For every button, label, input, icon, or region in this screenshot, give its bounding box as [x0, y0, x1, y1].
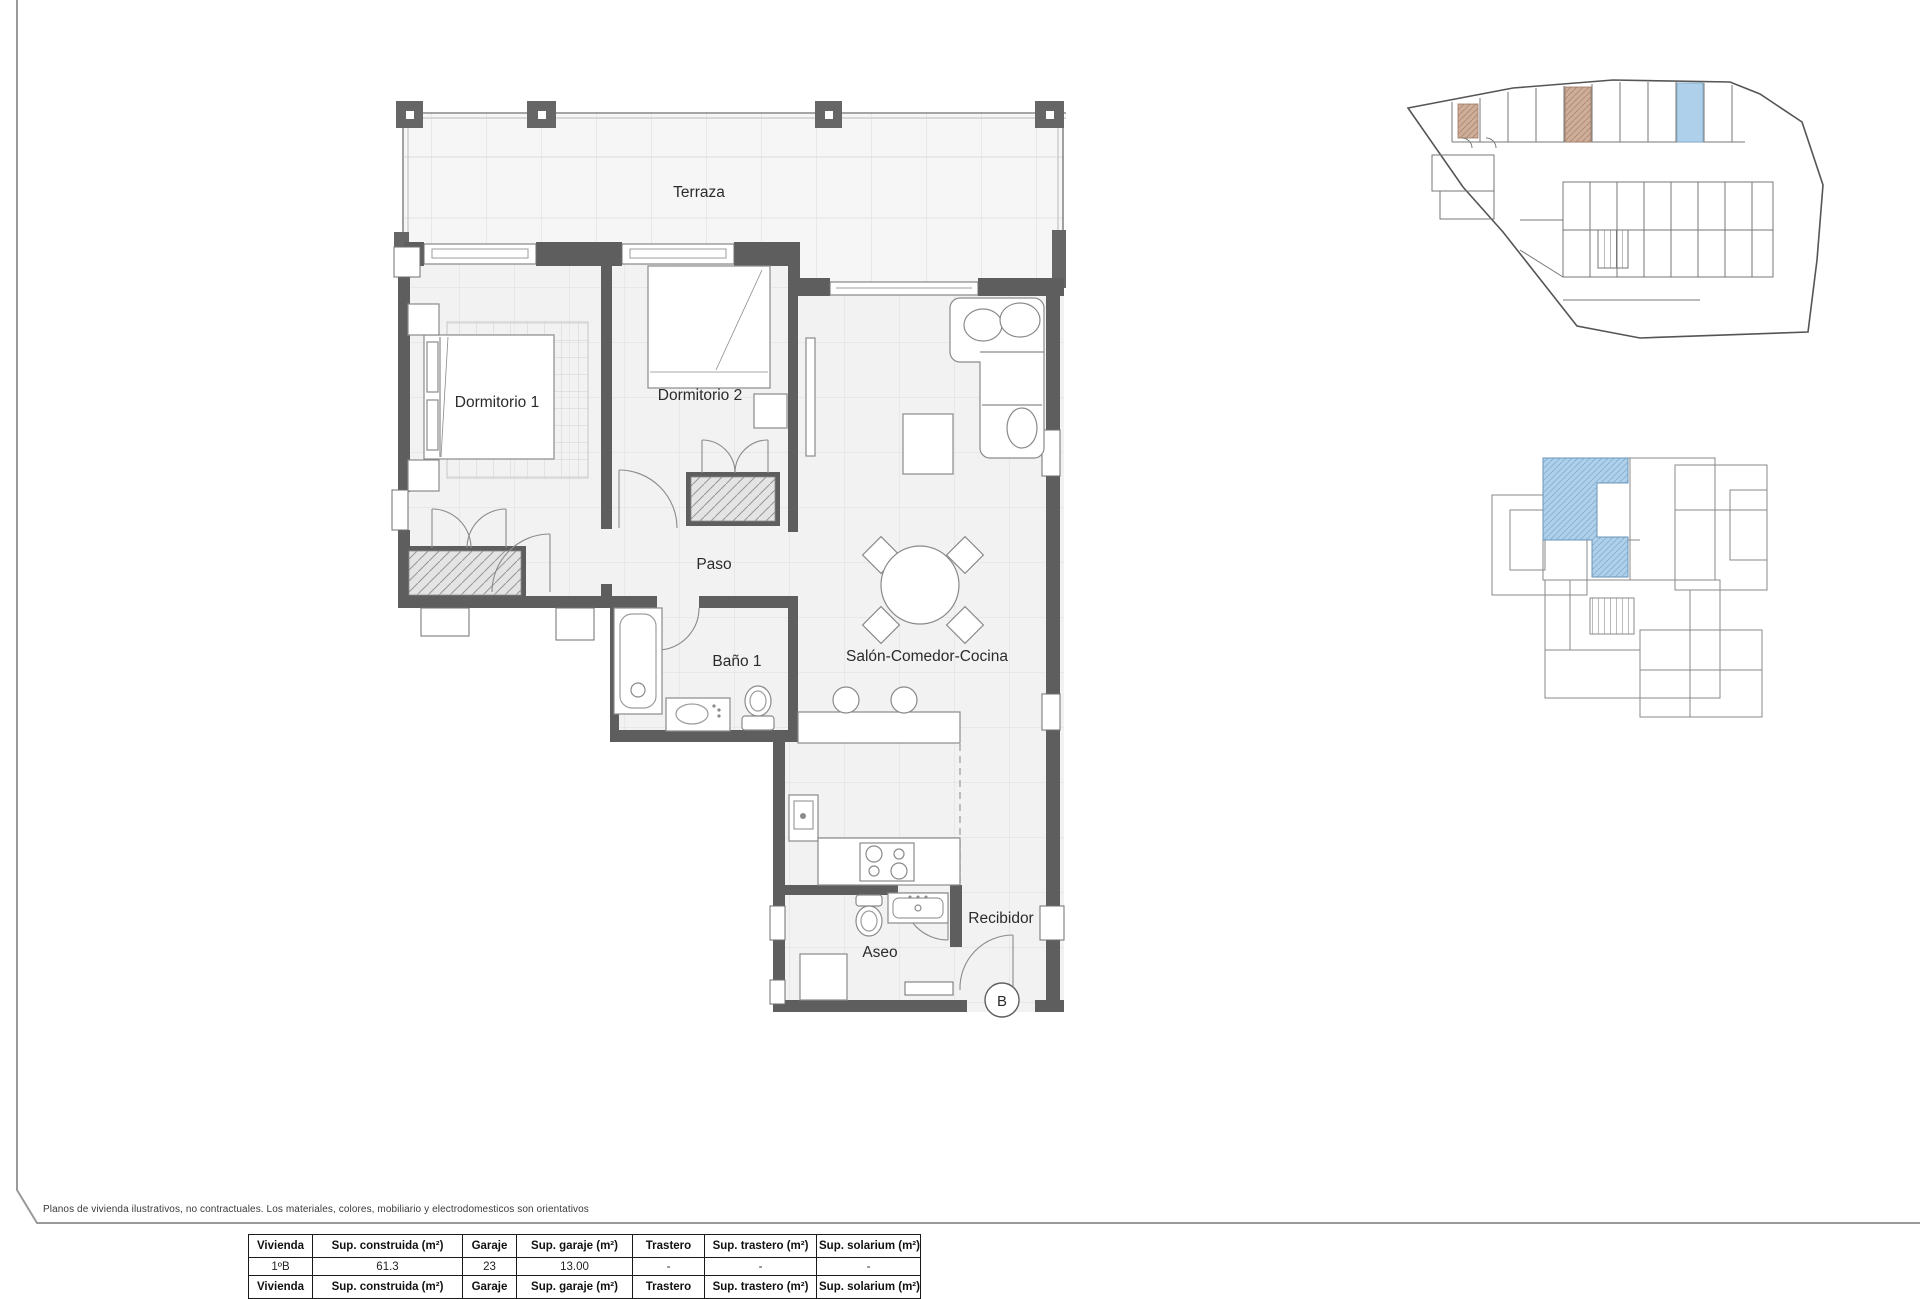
table-header-row: Vivienda Sup. construida (m²) Garaje Sup… — [249, 1235, 921, 1258]
toilet-icon — [856, 895, 882, 936]
room-label-paso: Paso — [696, 556, 731, 573]
col-trastero: Trastero — [633, 1235, 705, 1258]
wardrobe-dorm2 — [691, 477, 775, 521]
shower-icon — [800, 954, 847, 1000]
cell-sup-solarium: - — [817, 1258, 921, 1276]
nightstand-icon — [408, 304, 439, 335]
apartment-plan: Terraza Dormitorio 1 Dormitorio 2 Paso B… — [392, 101, 1066, 1017]
room-label-dormitorio1: Dormitorio 1 — [455, 394, 539, 411]
sink-vanity-icon — [888, 893, 948, 923]
cell-sup-garaje: 13.00 — [517, 1258, 633, 1276]
tv-icon — [806, 338, 815, 456]
col-garaje: Garaje — [463, 1235, 517, 1258]
table-header-row-repeat: Vivienda Sup. construida (m²) Garaje Sup… — [249, 1276, 921, 1299]
garage-space-tan — [1565, 87, 1591, 142]
wardrobe-dorm1 — [409, 551, 521, 595]
room-label-terraza: Terraza — [673, 184, 725, 201]
bed-dorm2-icon — [648, 266, 770, 388]
cell-sup-trastero: - — [705, 1258, 817, 1276]
hob-icon — [860, 843, 914, 881]
sink-vanity-icon — [666, 698, 730, 731]
col-sup-construida: Sup. construida (m²) — [313, 1235, 463, 1258]
col-sup-trastero: Sup. trastero (m²) — [705, 1235, 817, 1258]
room-label-salon: Salón-Comedor-Cocina — [846, 648, 1008, 665]
unit-badge: B — [985, 983, 1019, 1017]
cell-sup-construida: 61.3 — [313, 1258, 463, 1276]
col-vivienda: Vivienda — [249, 1235, 313, 1258]
room-label-dormitorio2: Dormitorio 2 — [658, 387, 742, 404]
nightstand-icon — [408, 460, 439, 491]
room-label-bano1: Baño 1 — [712, 653, 761, 670]
floor-plan-drawing: Terraza Dormitorio 1 Dormitorio 2 Paso B… — [0, 0, 1920, 1280]
cell-garaje: 23 — [463, 1258, 517, 1276]
garage-stairs-icon — [1598, 230, 1628, 268]
cell-vivienda: 1ºB — [249, 1258, 313, 1276]
disclaimer-text: Planos de vivienda ilustrativos, no cont… — [43, 1204, 589, 1215]
building-key-plan — [1492, 458, 1767, 717]
col-sup-garaje: Sup. garaje (m²) — [517, 1235, 633, 1258]
col-sup-solarium: Sup. solarium (m²) — [817, 1235, 921, 1258]
room-label-aseo: Aseo — [862, 944, 897, 961]
toilet-icon — [742, 686, 774, 730]
keyplan-unit-highlight — [1543, 458, 1628, 577]
cell-trastero: - — [633, 1258, 705, 1276]
coffee-table-icon — [903, 414, 953, 474]
garage-plan — [1408, 80, 1823, 338]
nightstand-icon — [754, 394, 787, 428]
unit-badge-letter: B — [997, 993, 1007, 1010]
garage-space-23-highlight — [1677, 83, 1703, 142]
surfaces-table: Vivienda Sup. construida (m²) Garaje Sup… — [248, 1234, 921, 1299]
room-label-recibidor: Recibidor — [968, 910, 1033, 927]
garage-space-tan-small — [1458, 104, 1478, 138]
bathtub-icon — [614, 608, 662, 714]
floorplan-page: { "page": { "disclaimer": "Planos de viv… — [0, 0, 1920, 1280]
table-row: 1ºB 61.3 23 13.00 - - - — [249, 1258, 921, 1276]
